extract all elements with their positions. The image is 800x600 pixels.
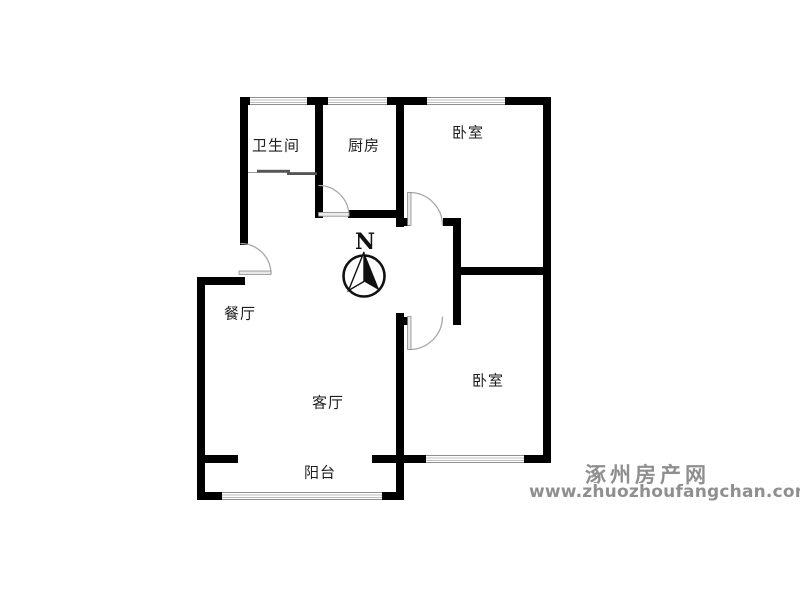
bedroom1-door-leaf xyxy=(408,193,411,226)
room-label-balcony: 阳台 xyxy=(304,462,336,483)
entry-door-leaf xyxy=(239,271,271,274)
bathroom-sliding-door-panel-2 xyxy=(287,172,317,175)
kitchen-door-arc xyxy=(319,185,350,216)
bedroom2-door-leaf xyxy=(408,317,411,350)
room-label-kitchen: 厨房 xyxy=(348,135,380,156)
compass-north-label: N xyxy=(355,229,375,255)
watermark-site-url: www.zhuozhoufangchan.com xyxy=(529,482,800,502)
floor-plan-canvas: 卫生间 厨房 卧室 餐厅 客厅 卧室 阳台 N 涿州房产网 www.zhuozh… xyxy=(0,0,800,600)
room-label-bathroom: 卫生间 xyxy=(252,135,300,156)
bedroom1-door-arc xyxy=(410,193,443,226)
door-and-compass-overlay xyxy=(0,0,800,600)
kitchen-door-leaf xyxy=(319,212,350,216)
room-label-bedroom-top: 卧室 xyxy=(452,122,484,143)
room-label-dining: 餐厅 xyxy=(224,303,256,324)
room-label-living: 客厅 xyxy=(312,392,344,413)
bedroom2-door-arc xyxy=(410,317,443,350)
bathroom-sliding-door-panel-1 xyxy=(257,170,290,173)
room-label-bedroom-bottom: 卧室 xyxy=(472,370,504,391)
entry-door-arc xyxy=(241,244,272,275)
